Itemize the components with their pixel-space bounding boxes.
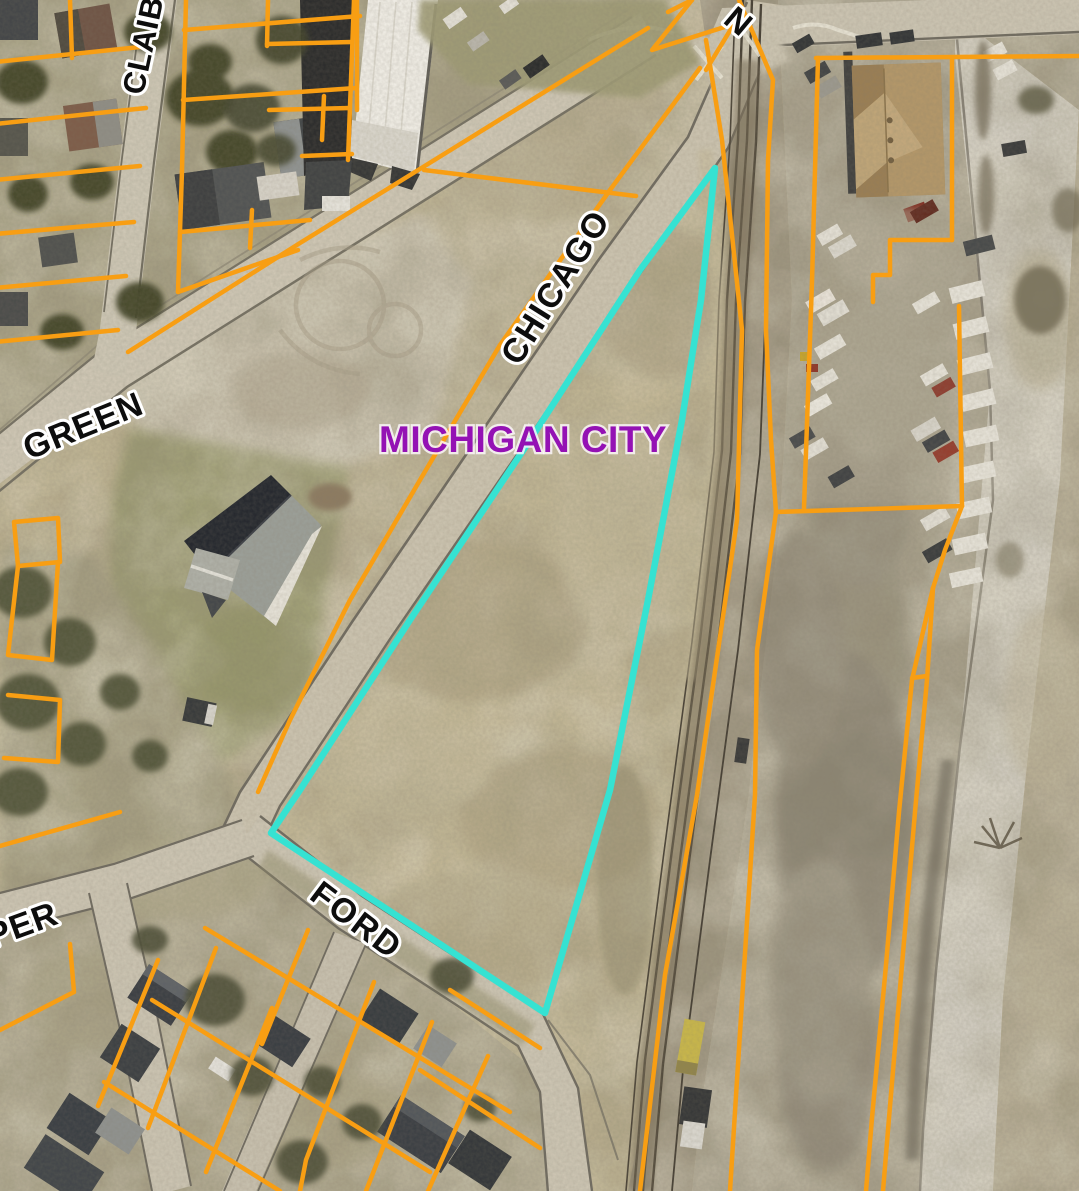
svg-text:MICHIGAN CITY: MICHIGAN CITY (379, 419, 667, 460)
